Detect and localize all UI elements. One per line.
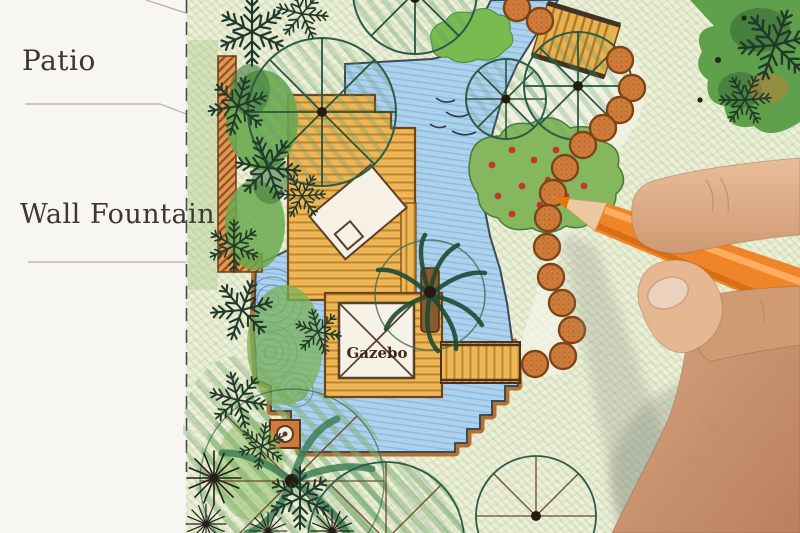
leader-line-top <box>146 0 186 13</box>
top-right-shrub-mass <box>690 0 800 136</box>
photo-landscape-plan: Gazebo <box>0 0 800 533</box>
grass-strip-behind-wall <box>188 40 218 290</box>
gazebo-label: Gazebo <box>346 344 407 362</box>
label-patio: Patio <box>22 44 96 77</box>
gazebo-symbol: Gazebo <box>339 303 414 378</box>
deck-stairs <box>441 342 520 383</box>
garden-plan-drawing: Gazebo <box>0 0 800 533</box>
boardwalk-edge <box>401 203 416 300</box>
index-finger <box>632 158 800 254</box>
tree-bottom-mid-right <box>476 456 596 533</box>
label-wall-fountain: Wall Fountain <box>20 199 215 230</box>
leader-line-patio <box>25 104 186 114</box>
hand <box>612 158 800 533</box>
